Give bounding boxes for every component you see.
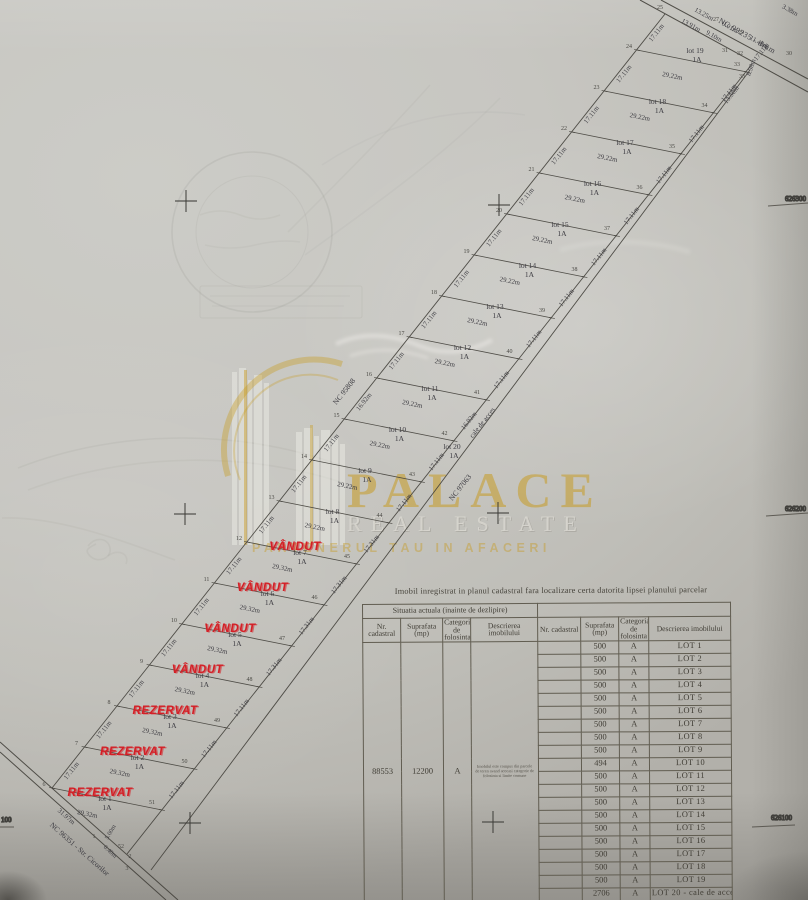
measure-right: 17.31m <box>298 615 317 636</box>
col-header: Categoria de folosinta <box>443 618 471 642</box>
vertex-number-left: 12 <box>236 536 242 542</box>
row-descriere: LOT 3 <box>649 666 731 680</box>
vertex-number-right: 44 <box>377 513 383 519</box>
vertex-number-right: 50 <box>182 759 188 765</box>
lot-number-label: lot 2 <box>131 753 145 762</box>
pencil-mark <box>205 241 300 248</box>
row-descriere: LOT 7 <box>649 718 731 732</box>
row-nr-cadastral <box>539 784 582 797</box>
vertex-number-left: 8 <box>108 700 111 706</box>
lot-number-label: lot 8 <box>326 507 340 516</box>
row-suprafata: 500 <box>581 732 619 745</box>
measure-bottom: 29.22m <box>467 317 489 328</box>
measure-bottom: 29.32m <box>109 768 131 779</box>
lot-class-label: 1A <box>232 639 242 648</box>
row-nr-cadastral <box>538 706 581 719</box>
bottom-road-sw <box>0 752 166 900</box>
lot-class-label: 1A <box>427 393 437 402</box>
lot-number-label: lot 6 <box>261 589 275 598</box>
building-bar <box>340 444 345 545</box>
vertex-number-apex: 25 <box>657 5 663 11</box>
measure-bottom: 29.32m <box>272 563 294 574</box>
row-categoria: A <box>619 706 649 719</box>
vertex-number: 52 <box>118 844 124 850</box>
row-categoria: A <box>619 680 649 693</box>
vertex-number-left: 18 <box>431 290 437 296</box>
watermark: PALACEREAL ESTATEREAL ESTATEPARTENERUL T… <box>224 360 603 555</box>
lot-class-label: 1A <box>395 434 405 443</box>
row-descriere: LOT 15 <box>650 822 732 836</box>
measure-right: 17.11m <box>623 205 642 226</box>
measure-bottom: 29.32m <box>239 604 261 615</box>
lot-class-label: 1A <box>557 229 567 238</box>
grid-label-626300: 626300 <box>785 195 807 203</box>
grid-label-underline <box>766 513 808 516</box>
group-header-before: Situatia actuala (inainte de dezlipire) <box>363 603 538 618</box>
row-categoria: A <box>619 732 649 745</box>
row-suprafata: 500 <box>581 667 619 680</box>
stamp-box <box>200 286 362 318</box>
row-descriere: LOT 20 - cale de acces <box>650 887 732 900</box>
measure-bottom: 29.22m <box>402 399 424 410</box>
row-nr-cadastral <box>539 823 582 836</box>
row-descriere: LOT 8 <box>649 731 731 745</box>
lot-number-label: lot 10 <box>389 425 407 434</box>
row-suprafata: 500 <box>582 810 620 823</box>
vertex-number-right: 34 <box>702 103 708 109</box>
row-suprafata: 494 <box>581 758 619 771</box>
measure-bottom: 29.22m <box>564 194 586 205</box>
vertex-number-left: 22 <box>561 126 567 132</box>
lot-class-label: 1A <box>135 762 145 771</box>
pencil-mark <box>288 85 430 232</box>
lot-number-label: lot 1 <box>98 794 112 803</box>
top-dimension: 13.25m <box>693 7 715 23</box>
row-suprafata: 500 <box>582 836 620 849</box>
row-suprafata: 500 <box>582 771 620 784</box>
row-descriere: LOT 2 <box>649 653 731 667</box>
measure-right: 17.11m <box>200 738 219 759</box>
row-nr-cadastral <box>539 862 582 875</box>
lot-class-label: 1A <box>460 352 470 361</box>
measure-bottom: 29.22m <box>434 358 456 369</box>
row-nr-cadastral <box>539 836 582 849</box>
row-suprafata: 500 <box>581 654 619 667</box>
lot-class-label: 1A <box>655 106 665 115</box>
vertex-number-right: 48 <box>247 677 253 683</box>
vertex-number-left: 16 <box>366 372 372 378</box>
measure-right: 17.11m <box>493 369 512 390</box>
vertex-number-right: 39 <box>539 308 545 314</box>
row-categoria: A <box>620 836 650 849</box>
measure-bottom: 29.22m <box>369 440 391 451</box>
measure-bottom: 29.22m <box>629 112 651 123</box>
lot-class-label: 1A <box>590 188 600 197</box>
vertex-number-right: 33 <box>734 62 740 68</box>
col-header: Suprafata (mp) <box>401 618 443 642</box>
row-categoria: A <box>620 810 650 823</box>
vertex-number-right: 38 <box>572 267 578 273</box>
col-header: Suprafata (mp) <box>581 617 619 641</box>
measure-right: 17.31m <box>265 656 284 677</box>
row-nr-cadastral <box>538 719 581 732</box>
row-suprafata: 500 <box>581 680 619 693</box>
row-categoria: A <box>619 745 649 758</box>
row-suprafata: 500 <box>581 719 619 732</box>
measure-right: 17.11m <box>233 697 252 718</box>
access-road-lot-label: lot 20 <box>443 442 461 451</box>
tip-dimension: 5.00m <box>104 824 118 841</box>
row-descriere: LOT 12 <box>650 783 732 797</box>
grid-label-underline <box>768 203 808 206</box>
top-dimension: 3.38m <box>781 3 800 18</box>
measure-right: 17.31m <box>330 574 349 595</box>
row-categoria: A <box>619 641 649 654</box>
row-nr-cadastral <box>539 849 582 862</box>
vertex-number-left: 11 <box>204 577 210 583</box>
row-descriere: LOT 14 <box>650 809 732 823</box>
pencil-mark <box>87 539 110 559</box>
vertex-number-left: 21 <box>529 167 535 173</box>
row-suprafata: 500 <box>581 693 619 706</box>
vertex-number-left: 23 <box>594 85 600 91</box>
vertex-number-left: 6 <box>43 782 46 788</box>
vertex-number: 3 <box>126 866 129 872</box>
col-header: Descrierea imobilului <box>649 616 731 640</box>
lot-class-label: 1A <box>622 147 632 156</box>
measure-bottom: 29.32m <box>174 686 196 697</box>
row-nr-cadastral <box>539 875 582 888</box>
row-nr-cadastral <box>538 732 581 745</box>
vertex-number-left: 15 <box>334 413 340 419</box>
watermark-line2: REAL ESTATE <box>347 511 586 536</box>
lot-class-label: 1A <box>692 55 702 64</box>
vertex-number-right: 41 <box>474 390 480 396</box>
before-descriere: Imobilul este compus din parcele de tere… <box>471 641 540 900</box>
row-categoria: A <box>619 719 649 732</box>
building-bar <box>332 438 338 545</box>
vertex-number-left: 10 <box>171 618 177 624</box>
row-categoria: A <box>620 849 650 862</box>
row-suprafata: 500 <box>581 706 619 719</box>
measure-bottom: 29.22m <box>662 71 684 82</box>
row-nr-cadastral <box>538 667 581 680</box>
vertex-number-right: 37 <box>604 226 610 232</box>
building-bar <box>254 375 262 545</box>
grid-label-underline <box>752 825 795 827</box>
vertex-number-right: 46 <box>312 595 318 601</box>
measure-right: 17.11m <box>525 328 544 349</box>
tip-dimension: 6.40m <box>102 844 119 860</box>
row-descriere: LOT 4 <box>649 679 731 693</box>
row-descriere: LOT 17 <box>650 848 732 862</box>
vertex-number: 31 <box>722 48 728 54</box>
before-suprafata: 12200 <box>401 642 445 900</box>
vertex-number-left: 13 <box>269 495 275 501</box>
lot-number-label: lot 4 <box>196 671 210 680</box>
row-categoria: A <box>620 771 650 784</box>
row-nr-cadastral <box>538 758 581 771</box>
lot-class-label: 1A <box>492 311 502 320</box>
row-suprafata: 500 <box>581 641 619 654</box>
measure-bottom: 29.32m <box>207 645 229 656</box>
row-descriere: LOT 13 <box>650 796 732 810</box>
row-categoria: A <box>619 758 649 771</box>
row-categoria: A <box>620 823 650 836</box>
neighbor-nw-label: NC 95808 <box>331 376 357 406</box>
lot-class-label: 1A <box>265 598 275 607</box>
lot-number-label: lot 12 <box>454 343 472 352</box>
row-nr-cadastral <box>538 693 581 706</box>
lot-class-label: 1A <box>200 680 210 689</box>
row-categoria: A <box>620 888 650 900</box>
vertex-number-left: 7 <box>75 741 78 747</box>
row-descriere: LOT 18 <box>650 861 732 875</box>
access-road-class-label: 1A <box>449 451 459 460</box>
col-header: Nr. cadastral <box>363 618 401 642</box>
before-nr-cadastral: 88553 <box>363 642 403 900</box>
measure-bottom: 29.22m <box>532 235 554 246</box>
crease-line <box>560 242 690 252</box>
row-nr-cadastral <box>538 654 581 667</box>
col-header: Descrierea imobilului <box>471 617 538 641</box>
vertex-number: 32 <box>737 51 743 57</box>
row-categoria: A <box>620 797 650 810</box>
lot-number-label: lot 18 <box>649 97 667 106</box>
lot-number-label: lot 11 <box>421 384 438 393</box>
vertex-number-right: 49 <box>214 718 220 724</box>
group-header-after <box>538 602 731 617</box>
row-categoria: A <box>619 654 649 667</box>
vertex-number-right: 35 <box>669 144 675 150</box>
row-nr-cadastral <box>538 641 581 654</box>
lot-class-label: 1A <box>525 270 535 279</box>
measure-bottom: 29.22m <box>499 276 521 287</box>
watermark-brand: PALACE <box>347 462 603 518</box>
pencil-mark <box>108 552 127 564</box>
lot-class-label: 1A <box>297 557 307 566</box>
crease-line <box>350 350 428 358</box>
row-nr-cadastral <box>539 797 582 810</box>
cadastral-plan-photo: PALACEREAL ESTATEREAL ESTATEPARTENERUL T… <box>0 0 808 900</box>
measure-right: 17.11m <box>168 779 187 800</box>
row-suprafata: 500 <box>582 862 620 875</box>
lot-class-label: 1A <box>102 803 112 812</box>
lot-number-label: lot 13 <box>486 302 504 311</box>
row-categoria: A <box>619 693 649 706</box>
col-header: Categoria de folosinta <box>619 617 649 641</box>
lot-number-label: lot 15 <box>551 220 569 229</box>
row-categoria: A <box>620 875 650 888</box>
vertex-number-right: 51 <box>149 800 155 806</box>
bottom-road-ne <box>0 742 178 900</box>
vertex-number-left: 14 <box>301 454 307 460</box>
row-suprafata: 500 <box>582 797 620 810</box>
col-header: Nr. cadastral <box>538 617 581 641</box>
lot-number-label: lot 5 <box>228 630 242 639</box>
stamp-inner-circle <box>196 176 308 288</box>
vertex-number: 2 <box>129 854 132 860</box>
measure-bottom: 29.32m <box>142 727 164 738</box>
row-descriere: LOT 19 <box>650 874 732 888</box>
grid-label-left-partial: 100 <box>1 816 12 824</box>
vertex-number-right: 42 <box>442 431 448 437</box>
vertex-number-right: 43 <box>409 472 415 478</box>
row-suprafata: 500 <box>582 849 620 862</box>
lot-number-label: lot 16 <box>584 179 602 188</box>
row-suprafata: 500 <box>582 784 620 797</box>
pencil-mark <box>200 211 280 219</box>
vertex-number-left: 9 <box>140 659 143 665</box>
row-descriere: LOT 16 <box>650 835 732 849</box>
row-nr-cadastral <box>538 745 581 758</box>
vertex-number-right: 45 <box>344 554 350 560</box>
top-dimension: 8.98m <box>746 58 758 77</box>
pencil-mark <box>305 98 500 255</box>
row-descriere: LOT 11 <box>650 770 732 784</box>
before-categoria: A <box>443 642 473 900</box>
vertex-number: 1 <box>93 834 96 840</box>
row-nr-cadastral <box>539 810 582 823</box>
lot-number-label: lot 19 <box>686 46 704 55</box>
vertex-number-left: 24 <box>626 44 632 50</box>
row-categoria: A <box>620 862 650 875</box>
row-descriere: LOT 1 <box>649 640 731 654</box>
vertex-number: 33 <box>739 74 745 80</box>
vertex-number: 30 <box>786 51 792 57</box>
row-categoria: A <box>620 784 650 797</box>
row-suprafata: 500 <box>582 875 620 888</box>
row-descriere: LOT 9 <box>649 744 731 758</box>
measure-bottom: 29.32m <box>77 809 99 820</box>
row-descriere: LOT 6 <box>649 705 731 719</box>
row-nr-cadastral <box>539 771 582 784</box>
row-descriere: LOT 5 <box>649 692 731 706</box>
before-descriere-text: Imobilul este compus din parcele de tere… <box>475 764 535 778</box>
lot-class-label: 1A <box>330 516 340 525</box>
row-nr-cadastral <box>538 680 581 693</box>
lot-number-label: lot 14 <box>519 261 537 270</box>
row-suprafata: 2706 <box>582 888 620 900</box>
row-suprafata: 500 <box>582 823 620 836</box>
lot-number-label: lot 7 <box>293 548 307 557</box>
lot-number-label: lot 3 <box>163 712 177 721</box>
row-nr-cadastral <box>539 888 582 900</box>
measure-bottom: 29.22m <box>597 153 619 164</box>
measure-right: 17.11m <box>590 246 609 267</box>
lot-class-label: 1A <box>167 721 177 730</box>
pencil-mark <box>322 112 525 165</box>
vertex-number-left: 19 <box>464 249 470 255</box>
lot-number-label: lot 9 <box>358 466 372 475</box>
vertex-number-right: 36 <box>637 185 643 191</box>
grid-label-626200: 626200 <box>785 505 807 513</box>
lot-number-label: lot 17 <box>616 138 634 147</box>
row-descriere: LOT 10 <box>649 757 731 771</box>
vertex-number-right: 40 <box>507 349 513 355</box>
vertex-number-right: 47 <box>279 636 285 642</box>
vertex-number-left: 17 <box>399 331 405 337</box>
cadastral-table: Situatia actuala (inainte de dezlipire)N… <box>362 602 733 900</box>
grid-label-626100: 626100 <box>771 814 793 822</box>
paper-crease <box>336 242 690 358</box>
row-categoria: A <box>619 667 649 680</box>
lot-class-label: 1A <box>362 475 372 484</box>
row-suprafata: 500 <box>581 745 619 758</box>
